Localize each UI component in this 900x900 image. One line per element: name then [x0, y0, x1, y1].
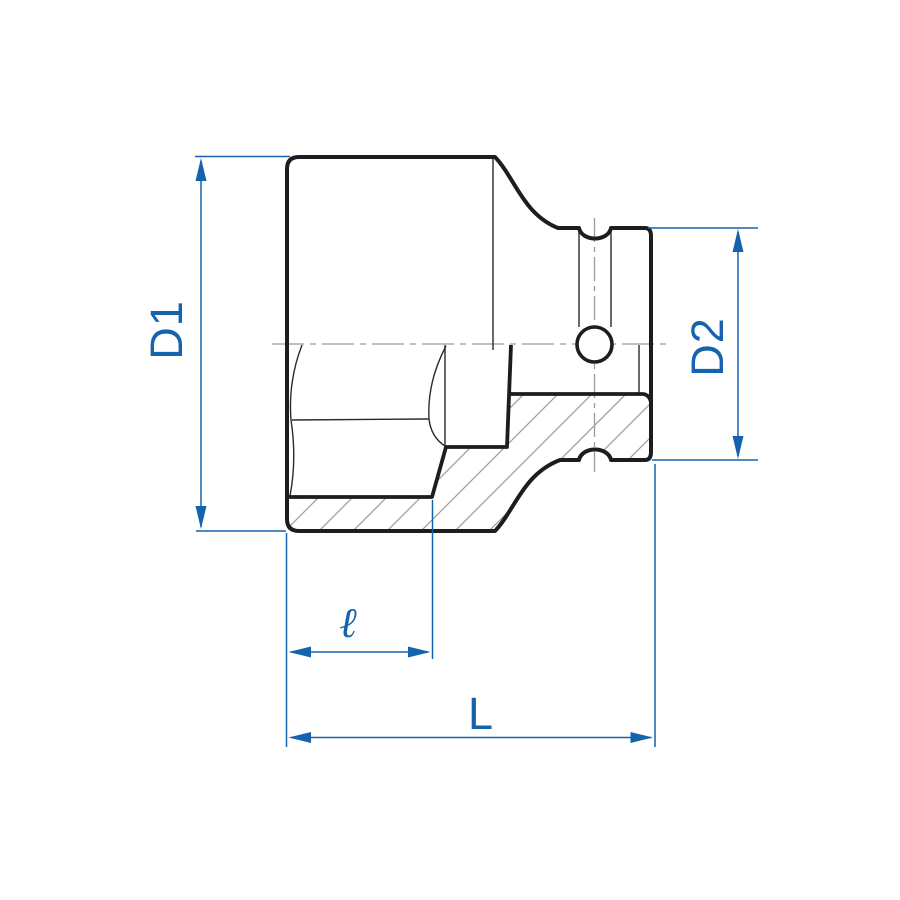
d1-arrow-up: [196, 158, 207, 181]
d1-arrow-down: [196, 506, 207, 529]
ell-arrow-right: [408, 647, 431, 658]
d2-label: D2: [682, 317, 733, 377]
length-arrow-right: [631, 732, 654, 743]
section-hatching: [287, 394, 651, 531]
hex-recess-bottom-arcs: [429, 346, 446, 446]
dimension-d1: D1: [141, 157, 290, 532]
d2-arrow-down: [733, 436, 744, 459]
length-arrow-left: [289, 732, 312, 743]
ell-label: ℓ: [339, 598, 357, 647]
ell-arrow-left: [289, 647, 312, 658]
length-label: L: [468, 688, 494, 739]
hex-recess-facet-edge: [292, 419, 429, 420]
socket-section-diagram: D1 D2 ℓ L: [0, 0, 900, 900]
technical-drawing-canvas: D1 D2 ℓ L: [0, 0, 900, 900]
d1-label: D1: [141, 300, 192, 360]
pin-hole-circle: [577, 327, 612, 362]
d2-arrow-up: [733, 229, 744, 252]
